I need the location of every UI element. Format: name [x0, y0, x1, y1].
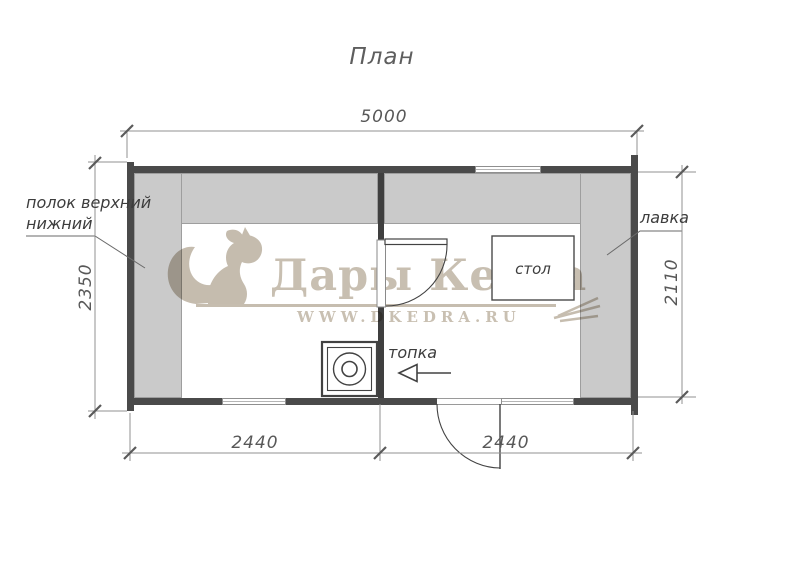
dimension-ticks — [89, 125, 688, 459]
dimension-right-room-width: 2440 — [456, 433, 556, 453]
label-furnace: топка — [388, 343, 437, 362]
label-shelf-upper: полок верхний — [26, 192, 151, 213]
dimension-right-height: 2110 — [662, 232, 682, 332]
label-table: стол — [492, 260, 574, 278]
page-title: План — [332, 44, 432, 70]
dimension-overall-width: 5000 — [334, 107, 434, 127]
dimension-left-height: 2350 — [76, 237, 96, 337]
label-shelf-lower: нижний — [26, 213, 151, 234]
floor-plan-canvas: План Дары Кедра WWW.DKEDRA. — [0, 0, 800, 565]
dimension-lines — [88, 131, 696, 461]
interior-door — [377, 239, 447, 307]
label-bench: лавка — [640, 208, 689, 227]
label-shelf: полок верхний нижний — [26, 192, 151, 234]
stove-icon — [322, 342, 377, 396]
furnace-direction-arrow-icon — [399, 365, 451, 382]
dimension-left-room-width: 2440 — [205, 433, 305, 453]
